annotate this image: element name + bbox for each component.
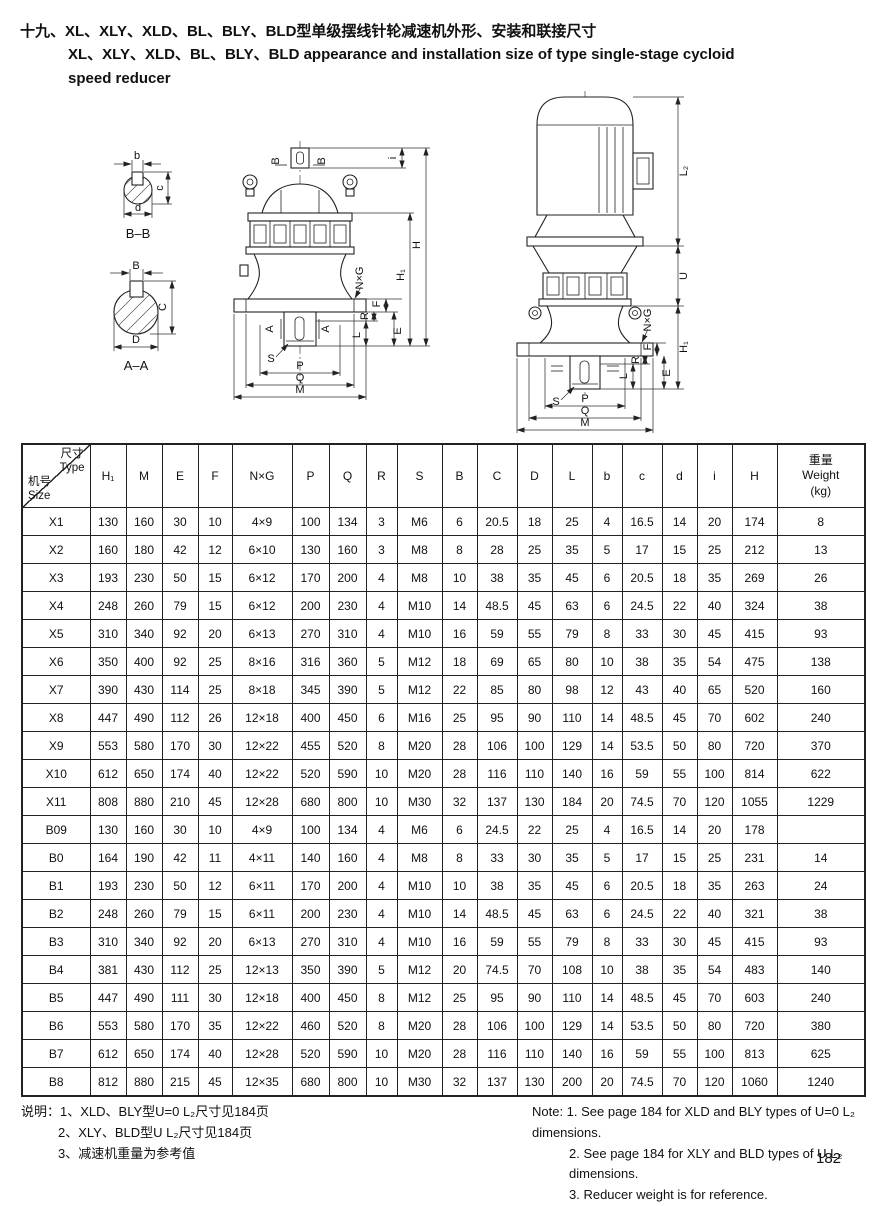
table-cell: 269 <box>732 564 777 592</box>
row-type-cell: X1 <box>22 508 90 536</box>
table-cell: 116 <box>477 760 517 788</box>
table-cell: 8 <box>592 928 622 956</box>
table-cell: 340 <box>126 928 162 956</box>
table-cell: 35 <box>552 536 592 564</box>
table-cell: 490 <box>126 984 162 1012</box>
table-cell: 164 <box>90 844 126 872</box>
table-cell: 42 <box>162 536 198 564</box>
table-cell: 310 <box>329 928 366 956</box>
table-cell: 720 <box>732 732 777 760</box>
table-cell: 70 <box>697 704 732 732</box>
table-cell: 30 <box>517 844 552 872</box>
table-corner-cell: 尺寸Type机号Size <box>22 444 90 508</box>
table-cell: 16.5 <box>622 816 662 844</box>
table-cell: 18 <box>662 564 697 592</box>
table-cell: 45 <box>517 900 552 928</box>
table-cell: 800 <box>329 788 366 816</box>
table-cell: 45 <box>198 788 232 816</box>
table-cell: 65 <box>697 676 732 704</box>
table-cell: 8×18 <box>232 676 292 704</box>
table-cell: 174 <box>162 1040 198 1068</box>
table-cell: 370 <box>777 732 865 760</box>
table-cell: 814 <box>732 760 777 788</box>
table-cell: 20 <box>592 1068 622 1097</box>
table-cell: 20 <box>198 620 232 648</box>
table-cell: 80 <box>517 676 552 704</box>
table-cell: 12×22 <box>232 1012 292 1040</box>
dim-label-h: H <box>411 241 423 249</box>
table-cell: 310 <box>90 620 126 648</box>
table-cell: 50 <box>662 732 697 760</box>
table-cell: 12×13 <box>232 956 292 984</box>
table-cell: 120 <box>697 1068 732 1097</box>
table-cell: 100 <box>697 760 732 788</box>
table-cell: 310 <box>90 928 126 956</box>
table-cell: 483 <box>732 956 777 984</box>
table-cell: 74.5 <box>622 788 662 816</box>
table-cell: 1229 <box>777 788 865 816</box>
reducer-front-view: B B i N×G <box>234 141 430 400</box>
table-cell: 17 <box>622 844 662 872</box>
dim-label-b-large: B <box>132 260 139 272</box>
table-cell: 79 <box>162 592 198 620</box>
table-cell: 35 <box>198 1012 232 1040</box>
table-cell: 48.5 <box>622 984 662 1012</box>
table-cell: 38 <box>777 592 865 620</box>
table-cell: 45 <box>662 984 697 1012</box>
table-cell: 10 <box>592 956 622 984</box>
row-type-cell: B5 <box>22 984 90 1012</box>
row-type-cell: B8 <box>22 1068 90 1097</box>
table-cell: 140 <box>552 1040 592 1068</box>
dimension-table: 尺寸Type机号SizeH₁MEFN×GPQRSBCDLbcdiH重量Weigh… <box>21 443 866 1097</box>
table-cell: 4×11 <box>232 844 292 872</box>
table-cell: 30 <box>662 928 697 956</box>
section-caption-aa: A–A <box>124 358 149 373</box>
row-type-cell: B4 <box>22 956 90 984</box>
table-cell: 70 <box>697 984 732 1012</box>
table-cell: 180 <box>126 536 162 564</box>
table-row: X118088802104512×2868080010M303213713018… <box>22 788 865 816</box>
table-cell: 12×22 <box>232 732 292 760</box>
table-cell: 140 <box>292 844 329 872</box>
table-cell: 520 <box>292 1040 329 1068</box>
table-cell: 345 <box>292 676 329 704</box>
table-cell: 5 <box>592 536 622 564</box>
table-cell: 20 <box>697 816 732 844</box>
table-cell: 612 <box>90 760 126 788</box>
table-cell: 54 <box>697 648 732 676</box>
section-mark-a-left: A <box>264 325 276 333</box>
table-cell: 6 <box>442 508 477 536</box>
table-cell: 35 <box>697 872 732 900</box>
table-cell: M20 <box>397 760 442 788</box>
table-cell: 447 <box>90 984 126 1012</box>
table-cell: 25 <box>552 508 592 536</box>
section-view-aa: B C D A–A <box>94 258 188 373</box>
table-row: B76126501744012×2852059010M2028116110140… <box>22 1040 865 1068</box>
table-cell: 45 <box>198 1068 232 1097</box>
table-cell: 16 <box>592 760 622 788</box>
table-cell: 200 <box>292 592 329 620</box>
table-cell: 602 <box>732 704 777 732</box>
table-cell: 25 <box>517 536 552 564</box>
table-cell: 98 <box>552 676 592 704</box>
table-cell: 20 <box>442 956 477 984</box>
table-cell: 10 <box>198 816 232 844</box>
table-cell: 321 <box>732 900 777 928</box>
table-cell: 460 <box>292 1012 329 1040</box>
table-cell: 6 <box>592 564 622 592</box>
column-header: H₁ <box>90 444 126 508</box>
table-cell: 50 <box>662 1012 697 1040</box>
table-cell: 4 <box>366 872 397 900</box>
table-cell: 625 <box>777 1040 865 1068</box>
table-cell: 400 <box>292 704 329 732</box>
table-cell: 15 <box>662 536 697 564</box>
column-header: F <box>198 444 232 508</box>
table-cell: 1055 <box>732 788 777 816</box>
table-cell: 129 <box>552 732 592 760</box>
table-cell: 92 <box>162 620 198 648</box>
table-cell: 5 <box>366 648 397 676</box>
table-cell: 12×18 <box>232 704 292 732</box>
dim-label-b-small: b <box>134 150 140 162</box>
table-row: X84474901122612×184004506M16259590110144… <box>22 704 865 732</box>
table-cell: 12×35 <box>232 1068 292 1097</box>
table-cell: 25 <box>697 844 732 872</box>
table-cell: 45 <box>517 592 552 620</box>
table-cell: 48.5 <box>622 704 662 732</box>
catalog-page: { "page": {"number": "182"}, "title": { … <box>0 0 875 1191</box>
table-cell: 650 <box>126 760 162 788</box>
table-cell: 129 <box>552 1012 592 1040</box>
table-cell: 16.5 <box>622 508 662 536</box>
section-mark-a-right: A <box>320 325 332 333</box>
dim-label-s: S <box>267 353 274 365</box>
table-cell: 553 <box>90 1012 126 1040</box>
table-cell: 240 <box>777 984 865 1012</box>
table-cell: 80 <box>697 1012 732 1040</box>
table-cell: 106 <box>477 1012 517 1040</box>
table-cell: M12 <box>397 648 442 676</box>
dim-label-i: i <box>387 157 399 159</box>
table-cell: 116 <box>477 1040 517 1068</box>
table-cell: 8 <box>366 984 397 1012</box>
dim-label-l-2: L <box>618 373 630 379</box>
table-cell: 10 <box>198 508 232 536</box>
table-cell: 20.5 <box>622 564 662 592</box>
table-cell: 24 <box>777 872 865 900</box>
table-cell: 6 <box>366 704 397 732</box>
table-cell: 200 <box>292 900 329 928</box>
table-cell: 415 <box>732 928 777 956</box>
note-en-1: Note: 1. See page 184 for XLD and BLY ty… <box>532 1102 861 1144</box>
table-cell: 212 <box>732 536 777 564</box>
table-cell: 70 <box>662 788 697 816</box>
table-header: 尺寸Type机号SizeH₁MEFN×GPQRSBCDLbcdiH重量Weigh… <box>22 444 865 508</box>
table-cell: 170 <box>292 872 329 900</box>
table-cell: 110 <box>552 704 592 732</box>
row-type-cell: B6 <box>22 1012 90 1040</box>
table-cell: 100 <box>292 816 329 844</box>
table-cell: 92 <box>162 928 198 956</box>
table-cell: 26 <box>198 704 232 732</box>
table-cell: 10 <box>442 564 477 592</box>
table-cell: 15 <box>198 564 232 592</box>
table-cell: 79 <box>162 900 198 928</box>
table-cell: 79 <box>552 620 592 648</box>
table-cell: 112 <box>162 956 198 984</box>
table-cell: 30 <box>198 732 232 760</box>
table-cell: 6 <box>592 592 622 620</box>
table-cell: 450 <box>329 984 366 1012</box>
table-cell: 134 <box>329 508 366 536</box>
table-cell: 260 <box>126 592 162 620</box>
table-cell: 33 <box>622 928 662 956</box>
table-cell: 30 <box>198 984 232 1012</box>
table-cell: 24.5 <box>622 900 662 928</box>
table-cell: 134 <box>329 816 366 844</box>
page-number: 182 <box>816 1150 841 1167</box>
table-cell: 5 <box>366 956 397 984</box>
row-type-cell: X2 <box>22 536 90 564</box>
table-cell: 38 <box>777 900 865 928</box>
table-cell: 22 <box>442 676 477 704</box>
table-row: B331034092206×132703104M1016595579833304… <box>22 928 865 956</box>
column-header: E <box>162 444 198 508</box>
table-row: B54474901113012×184004508M12259590110144… <box>22 984 865 1012</box>
technical-drawings: b c d B–B B C D A–A <box>0 85 875 443</box>
table-cell: 32 <box>442 788 477 816</box>
table-cell: 55 <box>517 928 552 956</box>
table-cell: 80 <box>697 732 732 760</box>
table-cell: 120 <box>697 788 732 816</box>
table-cell: 20.5 <box>477 508 517 536</box>
dim-label-nxg-2: N×G <box>642 309 654 332</box>
column-header: d <box>662 444 697 508</box>
table-cell: 10 <box>366 788 397 816</box>
table-cell: 4 <box>366 900 397 928</box>
table-cell: 28 <box>442 732 477 760</box>
table-cell: 430 <box>126 956 162 984</box>
table-row: B88128802154512×3568080010M3032137130200… <box>22 1068 865 1097</box>
table-cell: 603 <box>732 984 777 1012</box>
table-cell: 12×28 <box>232 1040 292 1068</box>
table-cell: 4 <box>366 564 397 592</box>
dim-label-p-2: P <box>581 393 588 405</box>
title-block: 十九、XL、XLY、XLD、BL、BLY、BLD型单级摆线针轮减速机外形、安装和… <box>20 20 735 90</box>
column-header: i <box>697 444 732 508</box>
dim-label-d-small: d <box>135 202 141 214</box>
table-row: X424826079156×122002304M101448.54563624.… <box>22 592 865 620</box>
table-cell: 240 <box>777 704 865 732</box>
table-cell: 35 <box>517 564 552 592</box>
table-cell: 130 <box>90 816 126 844</box>
table-cell: 55 <box>662 760 697 788</box>
table-cell: 18 <box>442 648 477 676</box>
table-cell: 400 <box>126 648 162 676</box>
table-cell: 10 <box>366 760 397 788</box>
table-cell: 10 <box>592 648 622 676</box>
dim-label-e-2: E <box>661 369 673 376</box>
table-cell: 6×12 <box>232 564 292 592</box>
table-cell: 14 <box>662 816 697 844</box>
table-cell: 6×13 <box>232 620 292 648</box>
table-cell: 26 <box>777 564 865 592</box>
dim-label-f: F <box>371 300 383 307</box>
table-cell: M12 <box>397 676 442 704</box>
dim-label-nxg: N×G <box>354 267 366 290</box>
page-title-zh: 十九、XL、XLY、XLD、BL、BLY、BLD型单级摆线针轮减速机外形、安装和… <box>20 20 735 43</box>
dim-label-r-2: R <box>630 356 642 364</box>
table-cell: 6 <box>442 816 477 844</box>
table-cell: 100 <box>292 508 329 536</box>
row-type-cell: B1 <box>22 872 90 900</box>
table-cell: 230 <box>329 592 366 620</box>
table-cell: 520 <box>732 676 777 704</box>
table-cell: 17 <box>622 536 662 564</box>
table-cell: 137 <box>477 788 517 816</box>
row-type-cell: B0 <box>22 844 90 872</box>
dim-label-q-2: Q <box>581 405 590 417</box>
table-cell: 43 <box>622 676 662 704</box>
table-cell: 70 <box>662 1068 697 1097</box>
motor-reducer-view: N×G S P Q M F R E L <box>517 91 690 433</box>
column-header: S <box>397 444 442 508</box>
table-cell: 74.5 <box>622 1068 662 1097</box>
table-cell: M8 <box>397 844 442 872</box>
table-cell: 6×11 <box>232 900 292 928</box>
table-cell: 230 <box>329 900 366 928</box>
table-cell: 92 <box>162 648 198 676</box>
row-type-cell: X4 <box>22 592 90 620</box>
table-cell: 28 <box>442 1040 477 1068</box>
row-type-cell: X6 <box>22 648 90 676</box>
table-cell: 40 <box>662 676 697 704</box>
table-cell: 59 <box>477 928 517 956</box>
table-cell: 5 <box>366 676 397 704</box>
table-cell: 390 <box>90 676 126 704</box>
column-header: C <box>477 444 517 508</box>
table-cell: 14 <box>777 844 865 872</box>
column-header: Q <box>329 444 366 508</box>
table-cell: 160 <box>126 816 162 844</box>
table-cell: 8 <box>366 732 397 760</box>
table-cell: 111 <box>162 984 198 1012</box>
table-cell: 33 <box>622 620 662 648</box>
table-cell: 12×22 <box>232 760 292 788</box>
dim-label-m: M <box>295 384 304 396</box>
table-cell: 20 <box>198 928 232 956</box>
table-cell: 455 <box>292 732 329 760</box>
table-cell: 14 <box>662 508 697 536</box>
table-cell: 6×11 <box>232 872 292 900</box>
table-cell: 316 <box>292 648 329 676</box>
table-cell: 14 <box>592 732 622 760</box>
table-cell: 40 <box>198 1040 232 1068</box>
table-cell: 174 <box>162 760 198 788</box>
row-type-cell: B09 <box>22 816 90 844</box>
table-cell: 3 <box>366 536 397 564</box>
table-row: X531034092206×132703104M1016595579833304… <box>22 620 865 648</box>
table-cell: 230 <box>126 564 162 592</box>
table-cell: 15 <box>662 844 697 872</box>
row-type-cell: B3 <box>22 928 90 956</box>
table-cell: 45 <box>552 564 592 592</box>
table-cell: 28 <box>442 760 477 788</box>
table-cell: M12 <box>397 984 442 1012</box>
table-cell: 170 <box>162 732 198 760</box>
table-cell: 12 <box>592 676 622 704</box>
table-cell: 16 <box>442 928 477 956</box>
table-cell: 35 <box>517 872 552 900</box>
table-cell: 106 <box>477 732 517 760</box>
dim-label-h1: H₁ <box>395 269 407 281</box>
table-cell: M20 <box>397 732 442 760</box>
section-mark-b-right: B <box>316 157 328 164</box>
table-cell: 12×18 <box>232 984 292 1012</box>
dim-label-h1-2: H₁ <box>678 341 690 353</box>
table-cell: 590 <box>329 1040 366 1068</box>
table-cell: 93 <box>777 928 865 956</box>
table-cell: 63 <box>552 900 592 928</box>
table-cell: 4 <box>366 816 397 844</box>
table-cell: 25 <box>442 704 477 732</box>
table-cell: M30 <box>397 1068 442 1097</box>
table-cell: 40 <box>198 760 232 788</box>
table-row: X216018042126×101301603M8828253551715252… <box>22 536 865 564</box>
table-cell: 520 <box>292 760 329 788</box>
table-cell: 40 <box>697 592 732 620</box>
table-cell: 59 <box>622 1040 662 1068</box>
table-cell: 137 <box>477 1068 517 1097</box>
table-row: X113016030104×91001343M6620.51825416.514… <box>22 508 865 536</box>
table-cell: 612 <box>90 1040 126 1068</box>
table-cell: 24.5 <box>622 592 662 620</box>
table-cell: M8 <box>397 536 442 564</box>
table-cell: 112 <box>162 704 198 732</box>
table-cell: 42 <box>162 844 198 872</box>
dim-label-m-2: M <box>580 417 589 429</box>
table-cell: 8 <box>777 508 865 536</box>
table-cell: 130 <box>517 1068 552 1097</box>
table-cell: 160 <box>329 536 366 564</box>
table-row: X635040092258×163163605M1218696580103835… <box>22 648 865 676</box>
table-cell: 475 <box>732 648 777 676</box>
table-cell: 25 <box>442 984 477 1012</box>
table-cell: 193 <box>90 564 126 592</box>
table-cell: 35 <box>697 564 732 592</box>
column-header-weight: 重量Weight(kg) <box>777 444 865 508</box>
table-cell: 25 <box>198 956 232 984</box>
table-cell: 90 <box>517 984 552 1012</box>
table-cell: M10 <box>397 592 442 620</box>
table-cell: 580 <box>126 1012 162 1040</box>
dim-label-u: U <box>678 272 690 280</box>
table-cell: 80 <box>552 648 592 676</box>
notes-en: Note: 1. See page 184 for XLD and BLY ty… <box>532 1102 861 1206</box>
table-cell: M8 <box>397 564 442 592</box>
column-header: B <box>442 444 477 508</box>
table-cell: 40 <box>697 900 732 928</box>
table-row: X319323050156×121702004M810383545620.518… <box>22 564 865 592</box>
table-cell: 22 <box>517 816 552 844</box>
table-cell: 38 <box>477 872 517 900</box>
table-cell: 10 <box>366 1068 397 1097</box>
table-cell: 4×9 <box>232 816 292 844</box>
table-cell: 100 <box>517 1012 552 1040</box>
